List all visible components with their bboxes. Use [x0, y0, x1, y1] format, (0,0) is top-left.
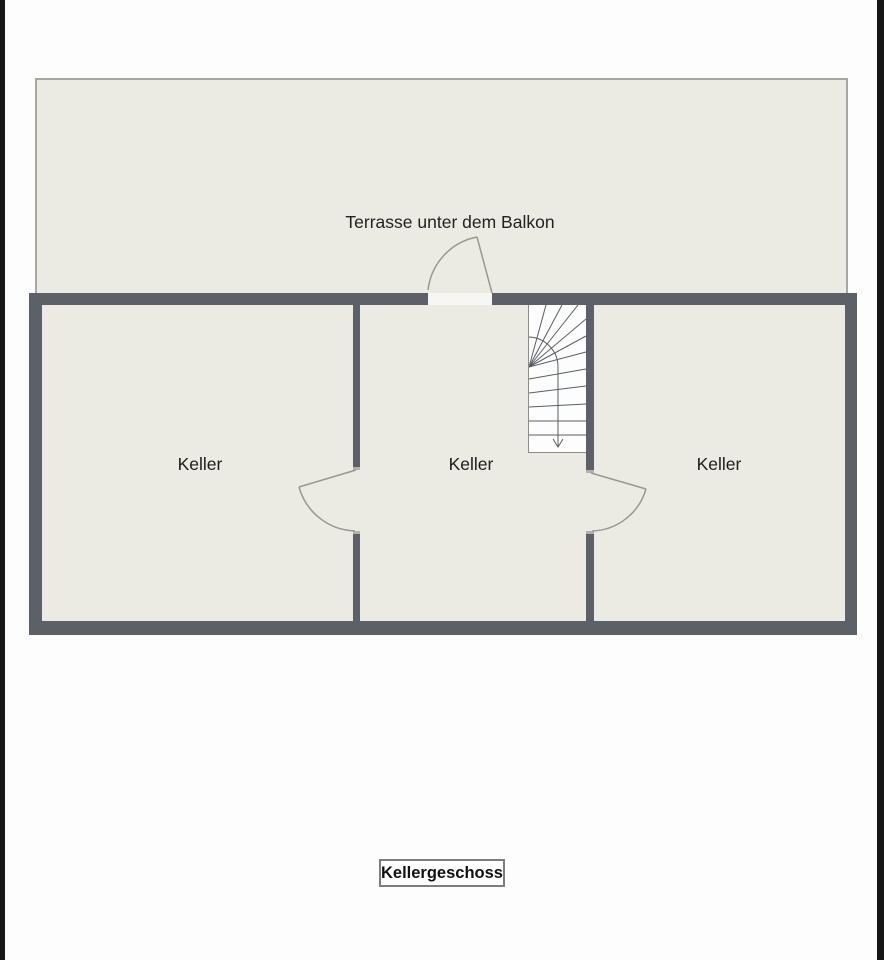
floor-caption-box: Kellergeschoss — [379, 859, 505, 887]
terrace-door-swing-icon — [418, 232, 498, 296]
stairs-icon — [529, 305, 586, 452]
floorplan-page: Terrasse unter dem Balkon — [0, 0, 884, 960]
right-room-door-swing-icon — [583, 461, 658, 541]
left-room-door-swing-icon — [290, 458, 365, 538]
letterbox-left — [0, 0, 5, 960]
interior-wall-left-lower — [353, 534, 360, 621]
stairwell — [528, 305, 586, 453]
interior-wall-right-lower — [586, 534, 594, 621]
interior-wall-right-upper — [586, 305, 594, 470]
floor-caption: Kellergeschoss — [381, 864, 503, 882]
interior-wall-left-upper — [353, 305, 360, 467]
room-label-left: Keller — [140, 452, 260, 476]
room-label-middle: Keller — [411, 452, 531, 476]
room-label-right: Keller — [659, 452, 779, 476]
letterbox-right — [877, 0, 884, 960]
